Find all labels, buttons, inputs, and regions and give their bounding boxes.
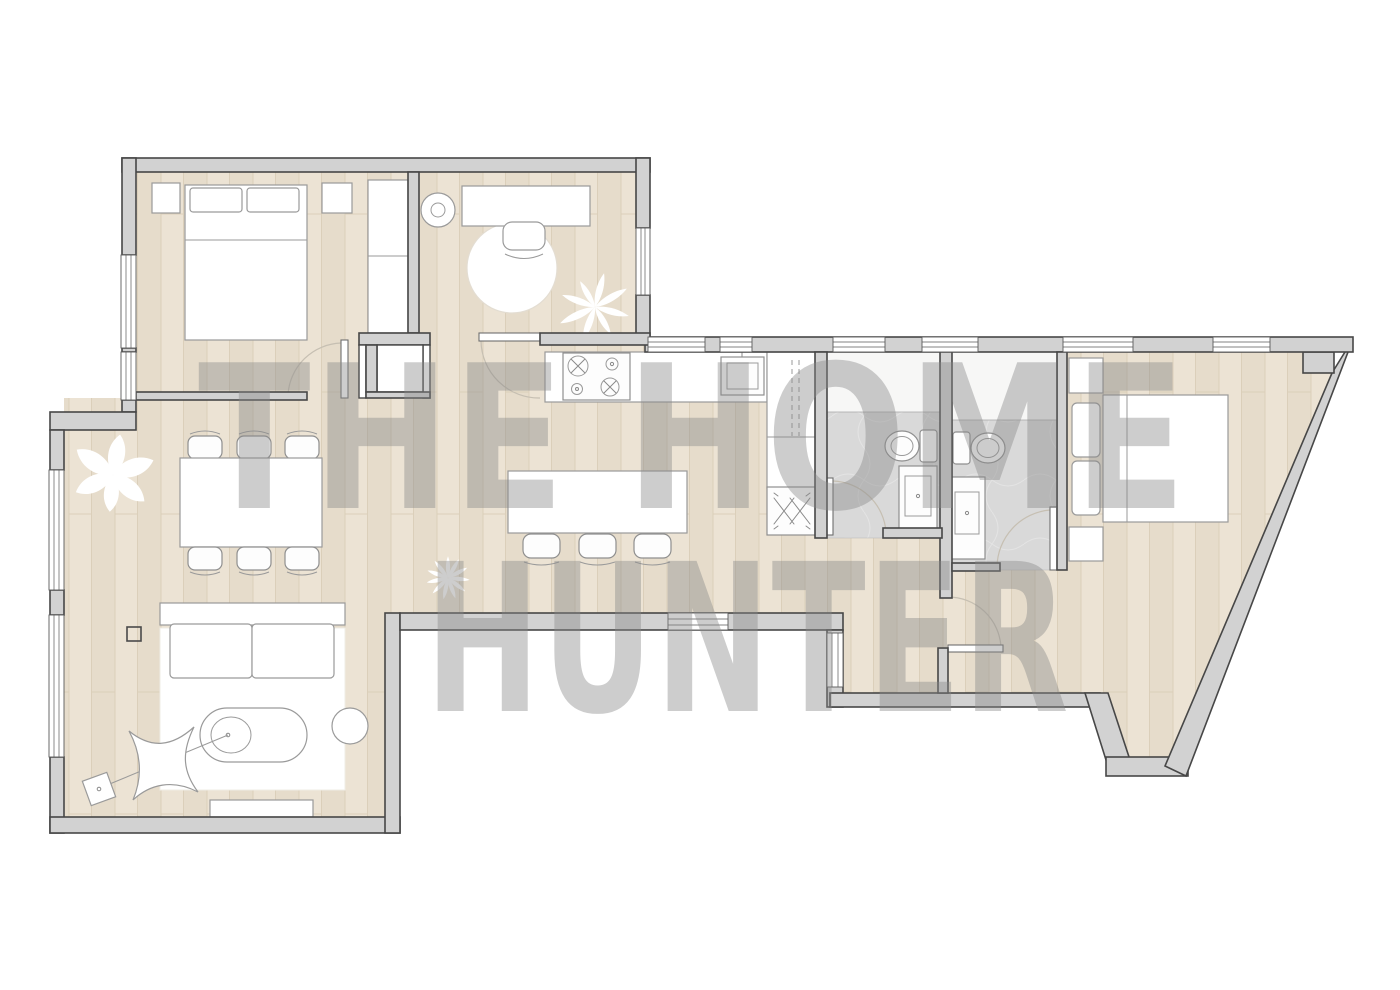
window <box>49 615 64 757</box>
wall-top-left-block <box>122 158 650 172</box>
nightstand-left <box>152 183 180 213</box>
sofa-back <box>160 603 345 625</box>
window <box>121 255 136 348</box>
nightstand-right <box>322 183 352 213</box>
round-side-table <box>332 708 368 744</box>
round-side-table <box>421 193 455 227</box>
wall-living-left-a <box>50 430 64 470</box>
window <box>121 352 136 400</box>
desk-chair <box>503 222 545 250</box>
window <box>49 470 64 590</box>
window <box>1213 337 1270 352</box>
floor-plan-canvas: THE HOME HUNTER <box>0 0 1400 990</box>
tv-console <box>210 800 313 817</box>
wall-left-mullion <box>122 348 136 352</box>
window <box>636 228 650 295</box>
wall-left-lower <box>122 400 136 412</box>
wall-living-left-b <box>50 590 64 615</box>
wall-step-out <box>50 412 136 430</box>
wall-bed1-office-divider <box>408 172 419 333</box>
desk <box>462 186 590 226</box>
wall-left-upper <box>122 158 136 255</box>
watermark-line2: HUNTER <box>425 520 1070 760</box>
wall-office-right-a <box>636 158 650 228</box>
pillow <box>190 188 242 212</box>
floor-plan-page: THE HOME HUNTER <box>0 0 1400 990</box>
wall-living-bottom <box>50 817 400 833</box>
wall-living-right <box>385 613 400 833</box>
pillow <box>247 188 299 212</box>
bedroom-1 <box>152 180 408 340</box>
sofa-cushion <box>170 624 252 678</box>
coffee-table <box>200 708 307 762</box>
sofa-cushion <box>252 624 334 678</box>
wall-notch <box>1303 352 1334 373</box>
